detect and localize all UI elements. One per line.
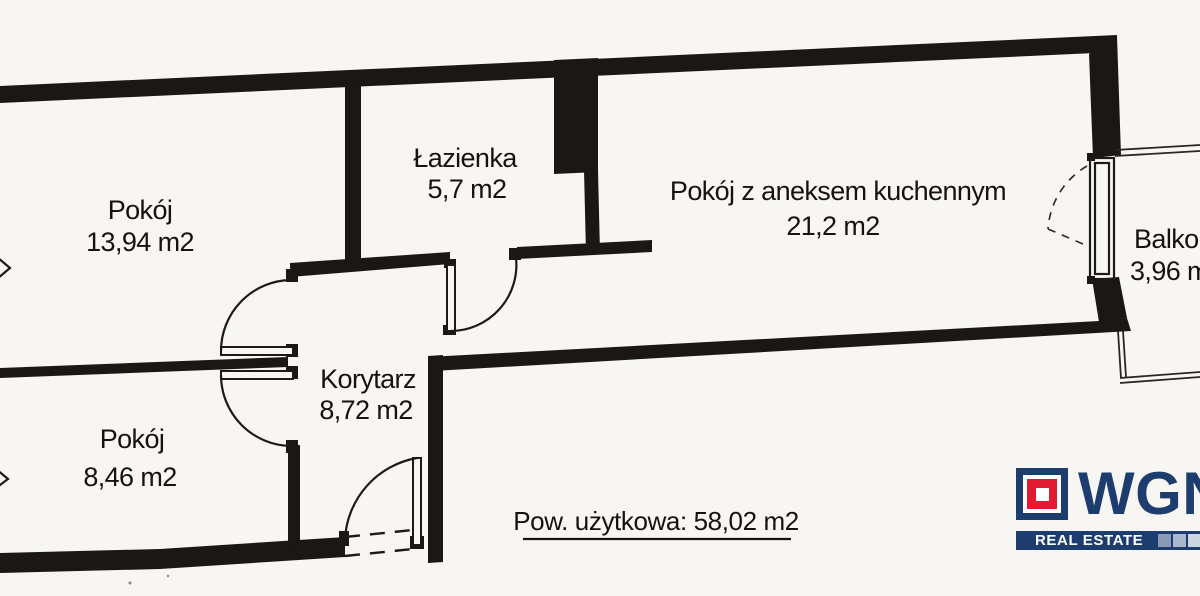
room2-name: Pokój xyxy=(100,424,165,454)
room1-door-arc xyxy=(221,280,291,351)
room1-area: 13,94 m2 xyxy=(86,227,194,257)
room1-door-leaf xyxy=(221,347,293,355)
wgn-logo-bar: REAL ESTATE xyxy=(1016,531,1200,550)
wall-corridor-right xyxy=(428,355,443,563)
balcony-name: Balkon xyxy=(1134,224,1200,254)
bathroom-name: Łazienka xyxy=(413,143,518,173)
wgn-logo-white-core xyxy=(1036,488,1049,501)
wall-pillar-shaft xyxy=(554,58,598,174)
logo-bar-square-3 xyxy=(1188,534,1200,547)
entrance-door-arc xyxy=(345,458,417,539)
balcony-top-line-1 xyxy=(1115,145,1200,150)
bathroom-door-arc xyxy=(451,258,516,331)
entrance-door-leaf xyxy=(413,458,421,545)
wall-corridor-left-lower xyxy=(288,445,300,547)
window-chevron-icon-bottom xyxy=(0,469,8,488)
room1-name: Pokój xyxy=(108,195,173,225)
wgn-logo-red-square xyxy=(1027,479,1057,509)
balcony-left-line-2 xyxy=(1123,331,1126,377)
window-chevron-icon-top xyxy=(0,257,10,279)
entrance-threshold-dash-top xyxy=(345,530,413,537)
balcony-door-frame-outer xyxy=(1090,158,1114,279)
corridor-name: Korytarz xyxy=(320,364,416,394)
room2-door-arc xyxy=(221,375,291,446)
balcony-left-line-1 xyxy=(1118,331,1121,378)
floor-plan-page: { "colors": { "paper": "#f7f6f3", "ink":… xyxy=(0,0,1200,596)
bathroom-door-leaf xyxy=(447,265,455,331)
wall-bathroom-right xyxy=(584,170,600,254)
bathroom-area: 5,7 m2 xyxy=(428,174,507,204)
room2-area: 8,46 m2 xyxy=(83,462,176,492)
usable-area-label: Pow. użytkowa: 58,02 m2 xyxy=(513,506,799,536)
scan-speck xyxy=(129,582,132,585)
entrance-threshold-dash-bottom xyxy=(345,549,413,556)
balcony-area: 3,96 m2 xyxy=(1130,256,1200,286)
walls xyxy=(0,35,1131,573)
logo-bar-square-2 xyxy=(1173,534,1186,547)
balcony-door-frame-inner xyxy=(1095,163,1109,274)
livingroom-area: 21,2 m2 xyxy=(786,211,879,241)
corridor-area: 8,72 m2 xyxy=(319,395,412,425)
scan-speck xyxy=(167,575,169,577)
wgn-logo: WGN REAL ESTATE xyxy=(1016,464,1200,550)
wgn-logo-row: WGN xyxy=(1016,464,1200,520)
wall-right-upper xyxy=(1089,36,1121,158)
logo-bar-square-1 xyxy=(1158,534,1171,547)
wgn-brand-text: WGN xyxy=(1078,468,1200,520)
wall-corridor-top xyxy=(290,252,450,277)
wall-kitchen-stub xyxy=(517,240,652,259)
balcony-door-swing-line xyxy=(1048,229,1090,247)
room2-door-leaf xyxy=(221,371,293,379)
balcony-door-swing-arc xyxy=(1048,166,1087,229)
balcony-top-line-2 xyxy=(1115,151,1200,156)
wgn-logo-mark-icon xyxy=(1016,468,1068,520)
wall-bathroom-left xyxy=(345,84,361,272)
wgn-tagline-text: REAL ESTATE xyxy=(1035,532,1143,549)
livingroom-name: Pokój z aneksem kuchennym xyxy=(670,176,1006,206)
wall-livingroom-bottom xyxy=(428,318,1131,371)
wall-right-lower xyxy=(1092,277,1127,322)
